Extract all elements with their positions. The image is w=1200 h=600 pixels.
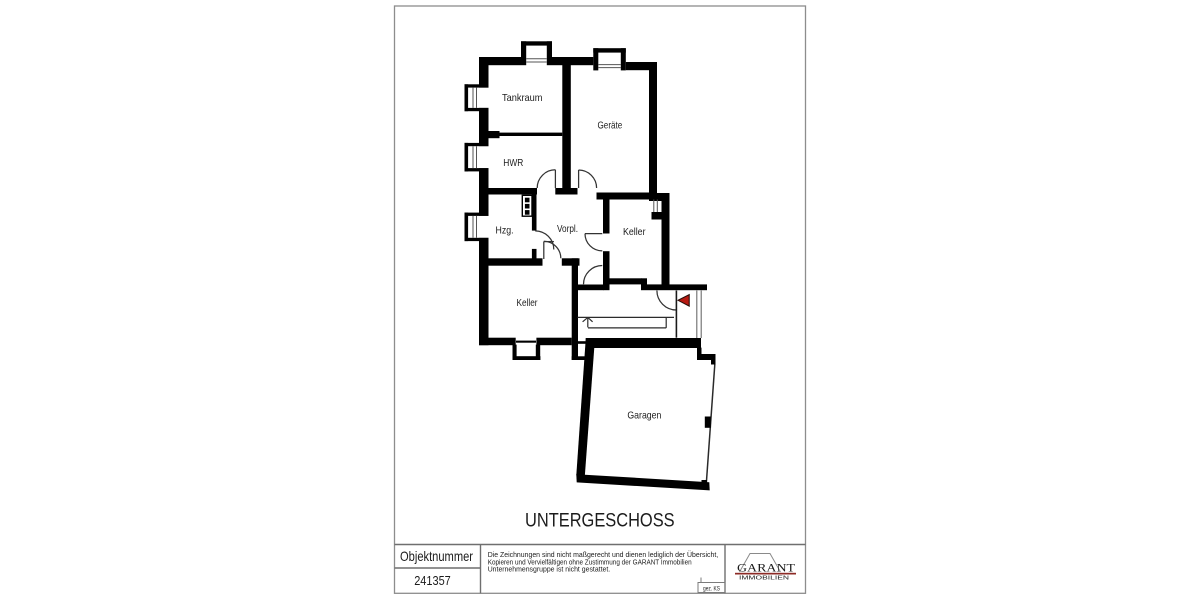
svg-text:241357: 241357 <box>414 574 451 588</box>
svg-text:Objektnummer: Objektnummer <box>400 548 473 564</box>
svg-text:Vorpl.: Vorpl. <box>557 224 578 235</box>
svg-text:gez. KS: gez. KS <box>703 586 720 593</box>
svg-text:Unternehmensgruppe ist nicht g: Unternehmensgruppe ist nicht gestattet. <box>488 565 611 574</box>
svg-text:Hzg.: Hzg. <box>496 225 514 236</box>
svg-text:UNTERGESCHOSS: UNTERGESCHOSS <box>525 511 675 532</box>
svg-text:Keller: Keller <box>517 298 538 309</box>
svg-text:Keller: Keller <box>623 227 646 238</box>
svg-text:Geräte: Geräte <box>598 120 623 131</box>
svg-text:IMMOBILIEN: IMMOBILIEN <box>739 576 789 582</box>
svg-text:Tankraum: Tankraum <box>502 93 543 104</box>
svg-text:GARANT: GARANT <box>737 563 795 575</box>
svg-text:Garagen: Garagen <box>627 410 661 421</box>
svg-text:HWR: HWR <box>503 158 523 169</box>
